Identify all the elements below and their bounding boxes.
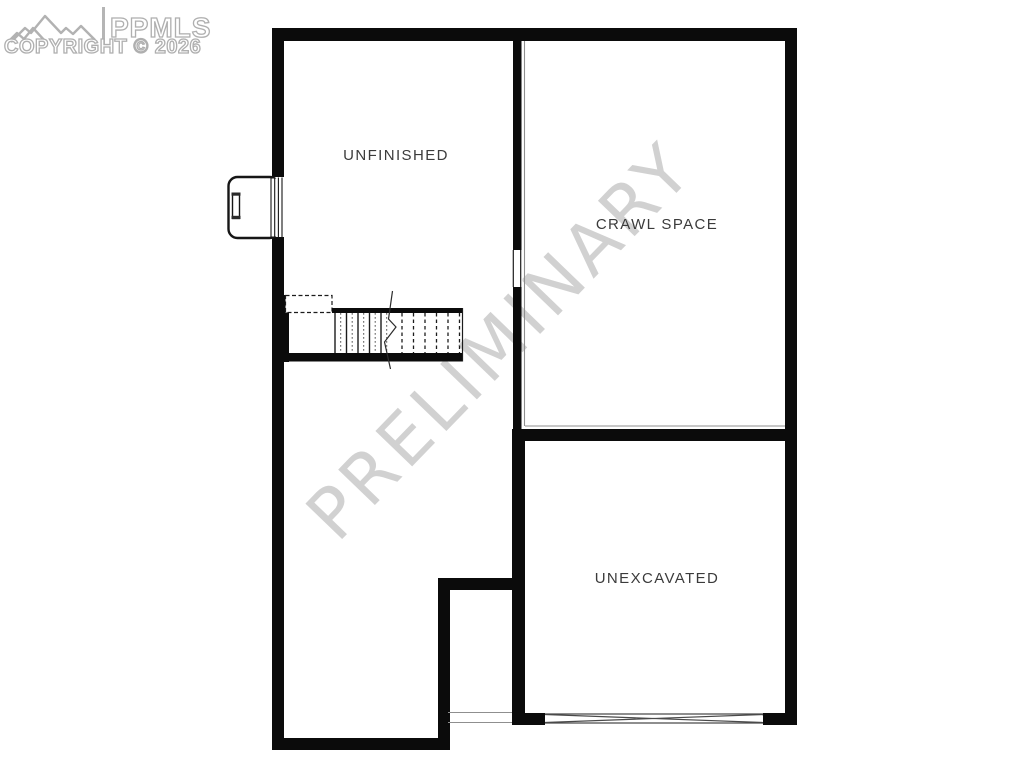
- logo-copyright-text: COPYRIGHT © 2026: [4, 36, 201, 59]
- wall-unexcavated-bottom-right: [763, 713, 797, 725]
- staircase-icon: [282, 291, 463, 369]
- room-label-unfinished: UNFINISHED: [296, 147, 496, 164]
- stair-bottom-rail: [282, 353, 463, 362]
- wall-mid-upper: [513, 41, 522, 250]
- wall-left-upper: [272, 28, 284, 177]
- wall-mid-lower: [513, 287, 522, 430]
- mls-logo: PPMLS COPYRIGHT © 2026: [0, 0, 220, 70]
- stair-top-rail: [332, 308, 463, 313]
- floor-plan-drawing: [0, 0, 1024, 767]
- wall-step-vertical: [438, 578, 450, 750]
- wall-unexcavated-left: [512, 429, 525, 725]
- stair-treads-solid: [335, 313, 381, 353]
- beam-cross-icon: [545, 714, 763, 723]
- crawl-ledge-line: [448, 41, 785, 723]
- wall-unexcavated-bottom-left: [512, 713, 545, 725]
- wall-unfinished-bottom: [272, 738, 450, 750]
- room-label-crawl-space: CRAWL SPACE: [557, 216, 757, 233]
- egress-ladder-icon: [232, 193, 241, 220]
- wall-group: [272, 28, 797, 750]
- stair-shelf-box: [286, 296, 333, 313]
- wall-unexcavated-top: [512, 429, 797, 441]
- wall-left-lower: [272, 237, 284, 750]
- stair-nosing-dashed: [341, 313, 387, 353]
- wall-right: [785, 28, 797, 725]
- room-label-unexcavated: UNEXCAVATED: [557, 570, 757, 587]
- wall-top: [272, 28, 797, 41]
- floorplan-page: PRELIMINARY PPMLS COPYRIGHT © 2026: [0, 0, 1024, 767]
- mid-wall-window: [512, 250, 523, 287]
- window-well-icon: [229, 177, 285, 238]
- stair-treads-dashed: [402, 313, 460, 353]
